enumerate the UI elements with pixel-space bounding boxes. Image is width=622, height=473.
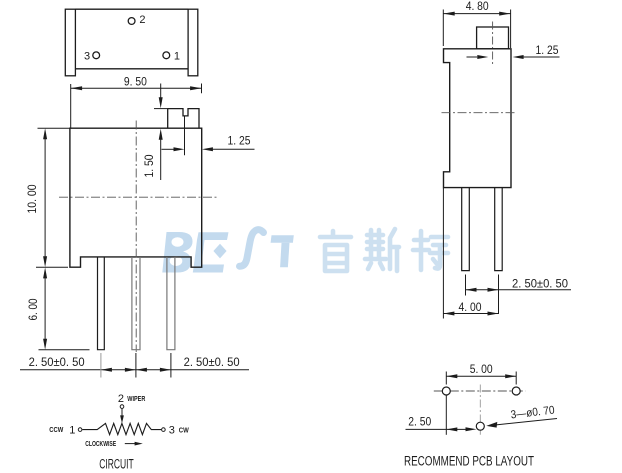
- svg-text:6. 00: 6. 00: [28, 299, 40, 321]
- svg-text:9. 50: 9. 50: [124, 77, 147, 89]
- svg-text:WIPER: WIPER: [127, 394, 145, 403]
- svg-text:2: 2: [139, 14, 145, 26]
- svg-text:4. 00: 4. 00: [459, 302, 482, 314]
- svg-text:1: 1: [174, 51, 180, 63]
- svg-text:5. 00: 5. 00: [470, 364, 493, 376]
- svg-text:CW: CW: [179, 425, 190, 434]
- svg-text:RECOMMEND PCB LAYOUT: RECOMMEND PCB LAYOUT: [404, 453, 534, 468]
- svg-text:2. 50±0. 50: 2. 50±0. 50: [512, 279, 568, 291]
- svg-text:2. 50±0. 50: 2. 50±0. 50: [184, 357, 240, 369]
- svg-text:1. 25: 1. 25: [228, 136, 251, 148]
- svg-text:CIRCUIT: CIRCUIT: [99, 457, 134, 472]
- svg-text:3: 3: [84, 51, 90, 63]
- svg-text:4. 80: 4. 80: [466, 1, 489, 13]
- svg-text:10. 00: 10. 00: [27, 185, 39, 214]
- svg-text:2: 2: [118, 393, 124, 405]
- svg-text:1. 50: 1. 50: [144, 155, 156, 178]
- svg-text:CLOCKWISE: CLOCKWISE: [85, 439, 116, 448]
- svg-text:CCW: CCW: [49, 425, 64, 434]
- svg-text:3: 3: [169, 425, 175, 437]
- svg-text:1. 25: 1. 25: [536, 45, 559, 57]
- svg-text:1: 1: [69, 424, 75, 436]
- svg-text:2. 50: 2. 50: [408, 416, 431, 428]
- svg-text:2. 50±0. 50: 2. 50±0. 50: [29, 357, 85, 369]
